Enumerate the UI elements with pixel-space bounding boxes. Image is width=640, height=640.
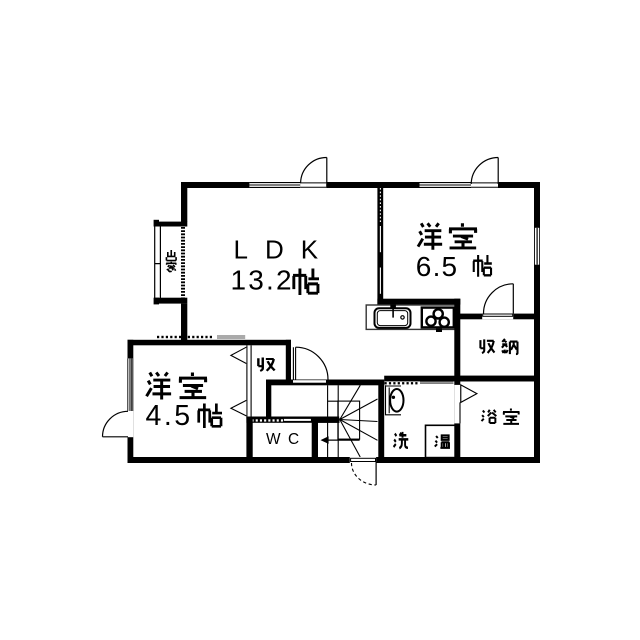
svg-text:LDK: LDK (234, 234, 336, 264)
svg-text:4.5: 4.5 (146, 400, 193, 432)
svg-text:13.2: 13.2 (231, 265, 294, 296)
svg-text:6.5: 6.5 (416, 251, 459, 282)
svg-text:WC: WC (266, 431, 307, 448)
